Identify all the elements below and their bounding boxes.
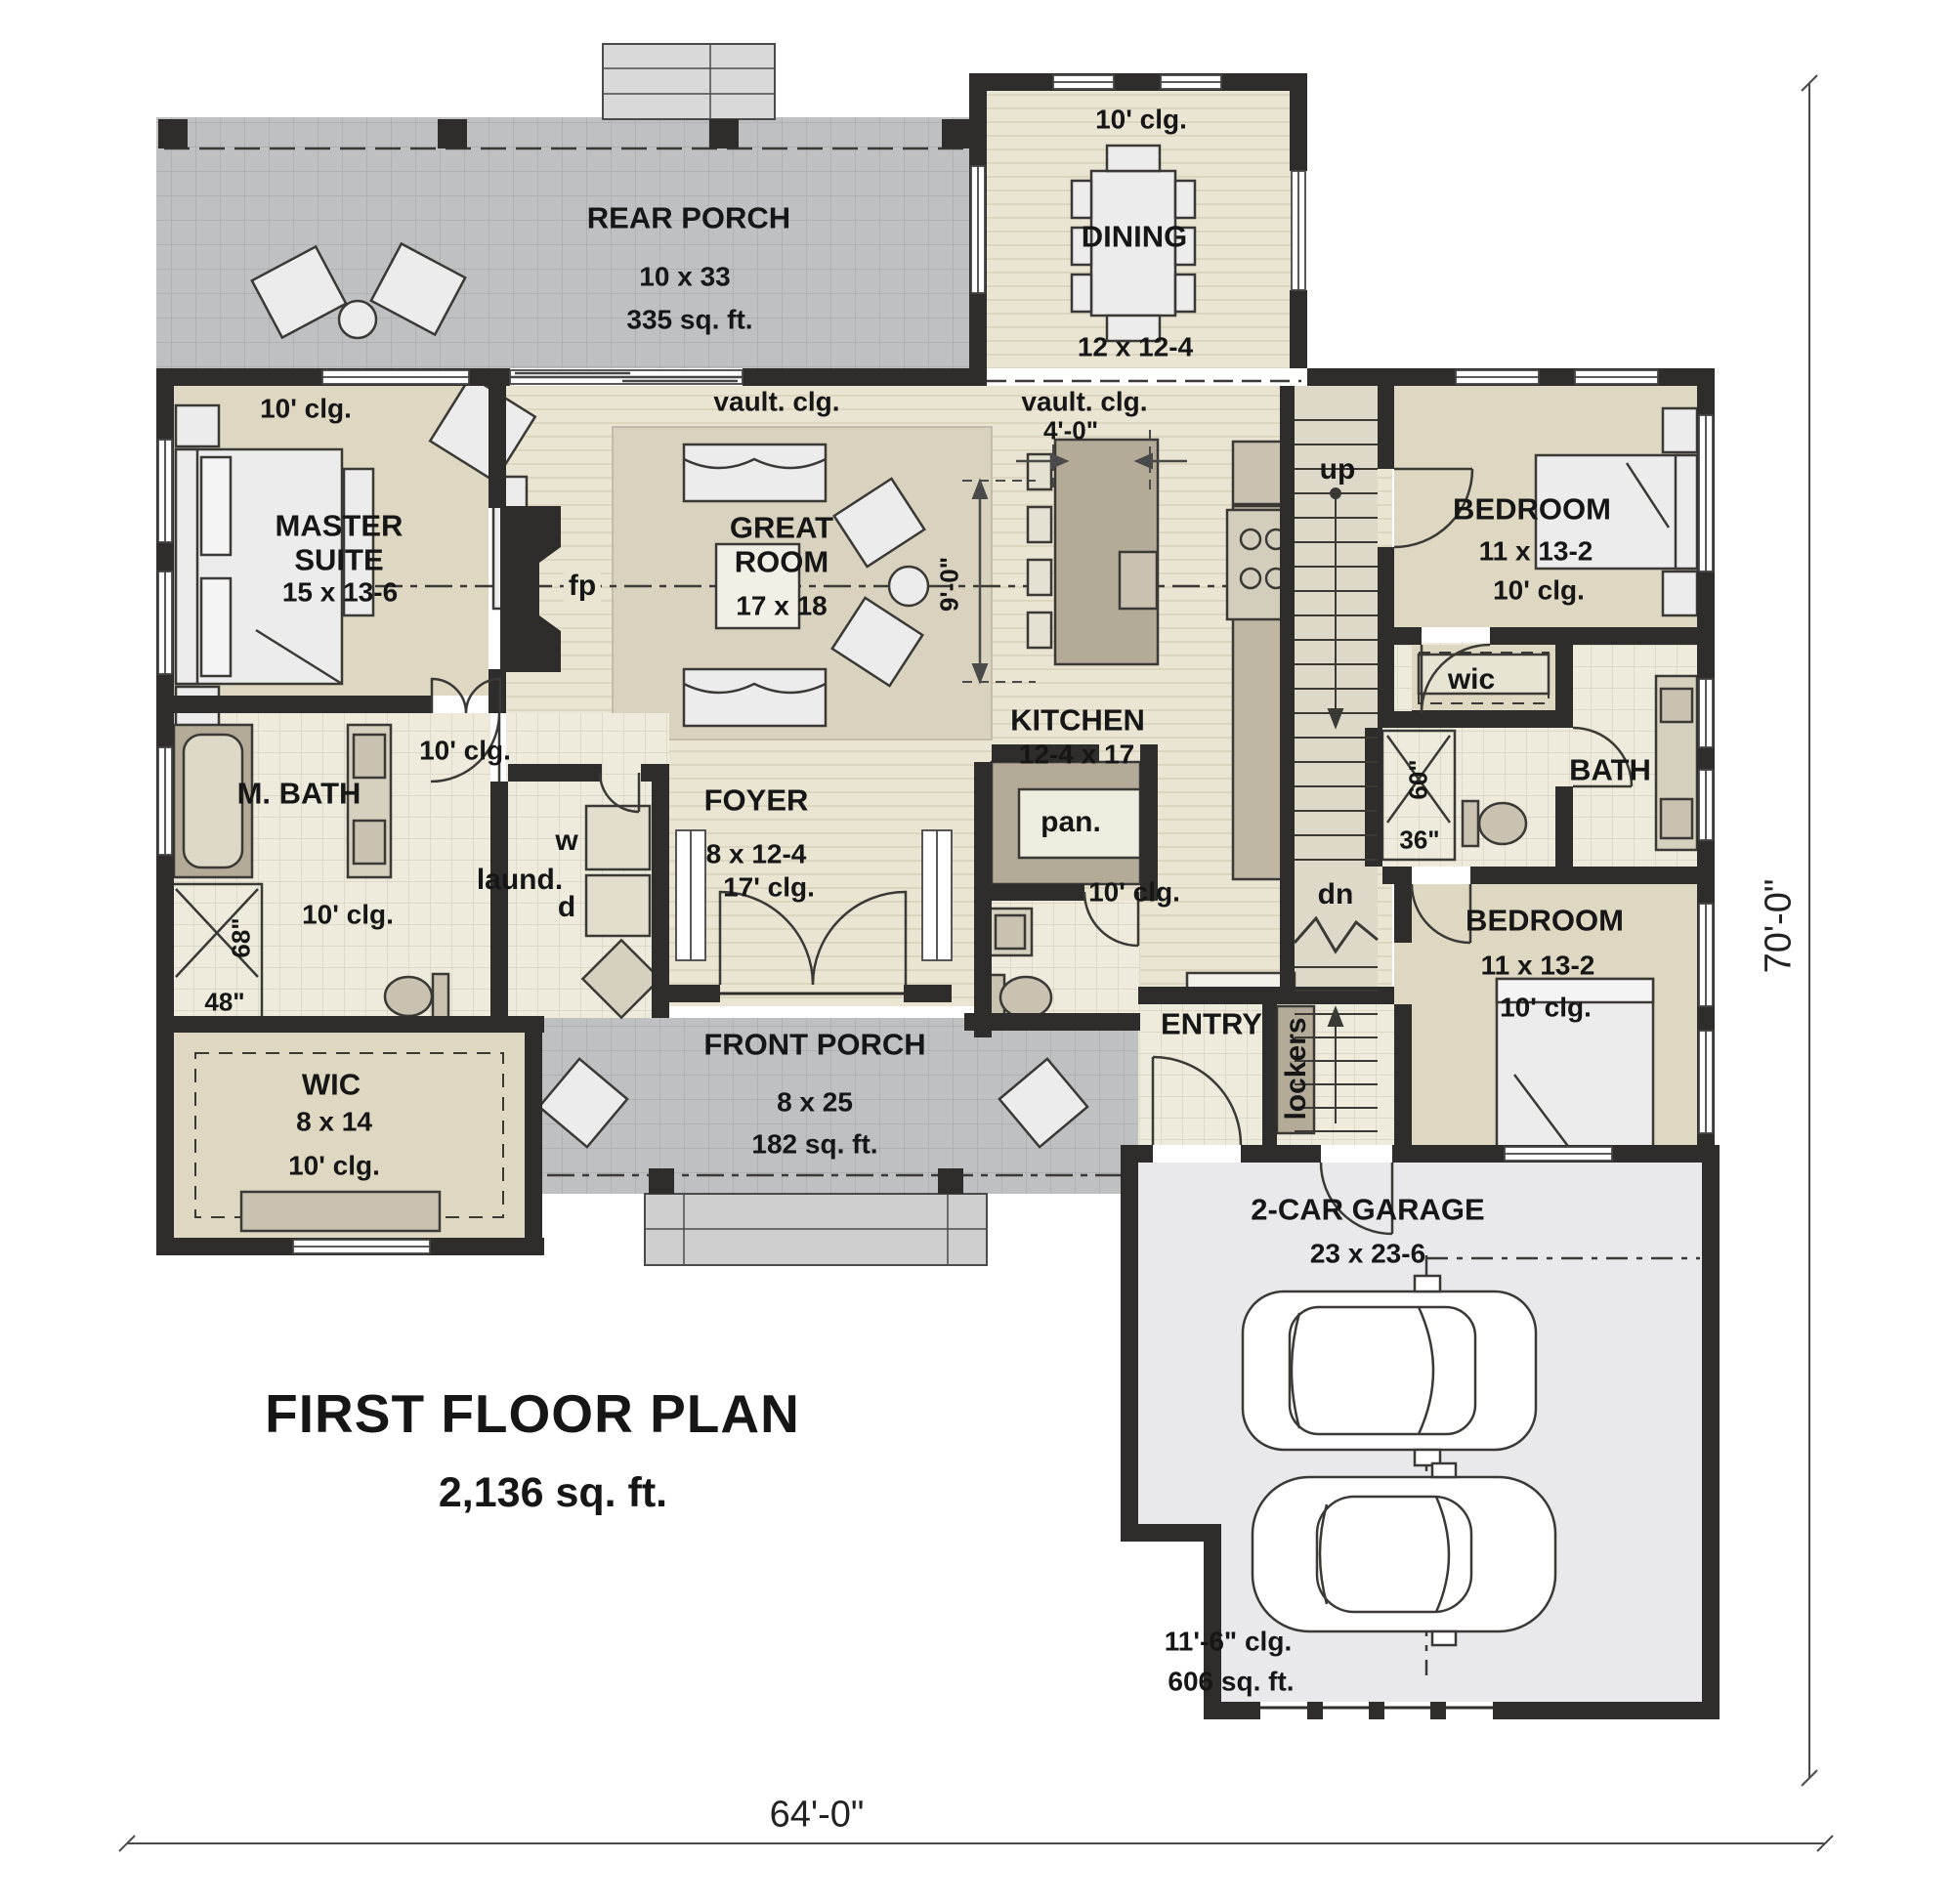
bedroom-upper-ceiling: 10' clg. <box>1493 574 1585 605</box>
washer-label: w <box>555 825 577 858</box>
garage-area: 606 sq. ft. <box>1168 1666 1294 1696</box>
foyer-label: FOYER <box>704 784 809 819</box>
kitchen-counter-icon <box>1227 442 1288 879</box>
rear-porch-area: 335 sq. ft. <box>626 304 752 334</box>
pantry-label: pan. <box>1041 806 1101 839</box>
dining-ceiling-label: 10' clg. <box>1095 104 1187 134</box>
garage-car-sedan-icon <box>1253 1463 1555 1645</box>
stove-icon <box>1227 510 1288 619</box>
bedroom-upper-size: 11 x 13-2 <box>1479 535 1593 566</box>
lockers-label: lockers <box>1280 1017 1313 1120</box>
kitchen-size: 12-4 x 17 <box>1019 739 1134 769</box>
wic-master-label: WIC <box>302 1069 361 1103</box>
wic-dresser-icon <box>241 1192 440 1231</box>
master-suite-label: MASTER SUITE <box>234 509 445 576</box>
fireplace-label: fp <box>564 570 601 603</box>
garage-size: 23 x 23-6 <box>1310 1238 1425 1268</box>
great-room-label: GREAT ROOM <box>684 511 879 578</box>
floor-plan-drawing <box>0 0 1954 1904</box>
wic-bedroom-label: wic <box>1448 663 1495 697</box>
rear-porch-size: 10 x 33 <box>639 261 730 291</box>
floor-plan-canvas: REAR PORCH 10 x 33 335 sq. ft. 10' clg. … <box>0 0 1954 1904</box>
dining-size: 12 x 12-4 <box>1078 331 1193 361</box>
bath-shower-width: 36" <box>1399 825 1439 854</box>
hall-rear-ceiling: 10' clg. <box>419 735 511 765</box>
kitchen-ceiling-label: vault. clg. <box>1021 386 1147 416</box>
bedroom-lower-label: BEDROOM <box>1465 905 1624 939</box>
garage-car-suv-icon <box>1243 1276 1536 1465</box>
wic-master-ceiling: 10' clg. <box>288 1150 380 1180</box>
bedroom-lower-size: 11 x 13-2 <box>1481 950 1595 980</box>
great-room-size: 17 x 18 <box>736 590 827 620</box>
front-porch-label: FRONT PORCH <box>698 1029 932 1063</box>
plan-title: FIRST FLOOR PLAN <box>265 1384 800 1445</box>
wc-toilet-icon <box>385 974 448 1019</box>
garage-ceiling: 11'-6" clg. <box>1165 1626 1292 1656</box>
master-ceiling-label: 10' clg. <box>260 393 352 423</box>
foyer-size: 8 x 12-4 <box>706 838 807 868</box>
laundry-appliances-icon <box>582 806 659 1018</box>
garage-label: 2-CAR GARAGE <box>1251 1194 1484 1228</box>
stairs-up-label: up <box>1320 453 1356 487</box>
island-width-dim: 4'-0" <box>1043 416 1098 444</box>
master-bath-label: M. BATH <box>226 778 372 812</box>
great-room-ceiling-label: vault. clg. <box>713 386 839 416</box>
bedroom-lower-ceiling: 10' clg. <box>1500 992 1592 1022</box>
mbath-shower-width: 48" <box>204 988 244 1016</box>
rear-porch-label: REAR PORCH <box>574 202 804 236</box>
wic-master-size: 8 x 14 <box>296 1106 372 1136</box>
mbath-shower-length: 68" <box>227 917 255 957</box>
kitchen-label: KITCHEN <box>1010 704 1145 739</box>
island-length-dim: 9'-0" <box>935 557 963 612</box>
front-porch-size: 8 x 25 <box>777 1086 853 1117</box>
bath-label: BATH <box>1569 754 1651 788</box>
stairs-down-label: dn <box>1318 878 1354 911</box>
height-dimension-label: 70'-0" <box>1759 879 1801 974</box>
foyer-ceiling: 17' clg. <box>723 871 815 902</box>
sliding-door-icon <box>510 370 743 384</box>
front-porch-area: 182 sq. ft. <box>751 1128 877 1159</box>
plan-area: 2,136 sq. ft. <box>439 1469 667 1516</box>
master-bath-ceiling: 10' clg. <box>302 899 394 929</box>
entry-label: ENTRY <box>1161 1008 1262 1042</box>
dryer-label: d <box>558 891 575 924</box>
bedroom-upper-label: BEDROOM <box>1453 493 1611 528</box>
bath-shower-length: 60" <box>1404 759 1432 799</box>
hall-stair-ceiling: 10' clg. <box>1088 876 1180 907</box>
dining-label: DINING <box>1082 221 1188 255</box>
master-suite-size: 15 x 13-6 <box>282 576 398 607</box>
laundry-label: laund. <box>477 864 563 897</box>
width-dimension-label: 64'-0" <box>770 1795 865 1837</box>
